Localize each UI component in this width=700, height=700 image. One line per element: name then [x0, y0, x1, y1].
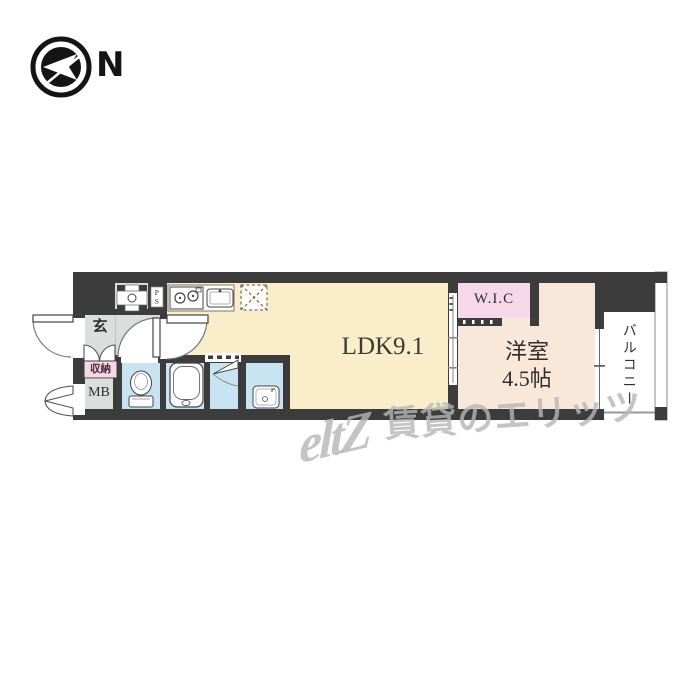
meter-box-doors: [45, 386, 73, 416]
washbasin-icon: [253, 386, 279, 408]
floorplan-page: N: [0, 0, 700, 700]
bedroom-label-line2: 4.5帖: [470, 367, 584, 390]
sink-icon: [207, 289, 233, 307]
storage-label: 収納: [84, 364, 117, 375]
washroom-sliding-door: [205, 353, 241, 362]
bathtub-icon: [170, 363, 203, 407]
wic-label: W.I.C: [458, 292, 530, 308]
balcony-side-panel: [655, 272, 667, 420]
pipe-space-label: PS: [153, 288, 161, 306]
refrigerator-icon: [241, 285, 267, 310]
sliding-door-ldk-bedroom: [448, 293, 458, 385]
ldk-label: LDK9.1: [327, 334, 439, 360]
meter-box-label: MB: [85, 386, 113, 401]
balcony-label: バルコニー: [620, 318, 635, 413]
toilet-icon: [129, 371, 153, 407]
bedroom-label-line1: 洋室: [470, 340, 584, 363]
balcony-window: [594, 329, 605, 409]
entrance-label: 玄: [86, 320, 114, 336]
washing-machine-icon: [117, 285, 147, 311]
stove-icon: [170, 287, 203, 309]
entrance-door: [33, 315, 73, 357]
